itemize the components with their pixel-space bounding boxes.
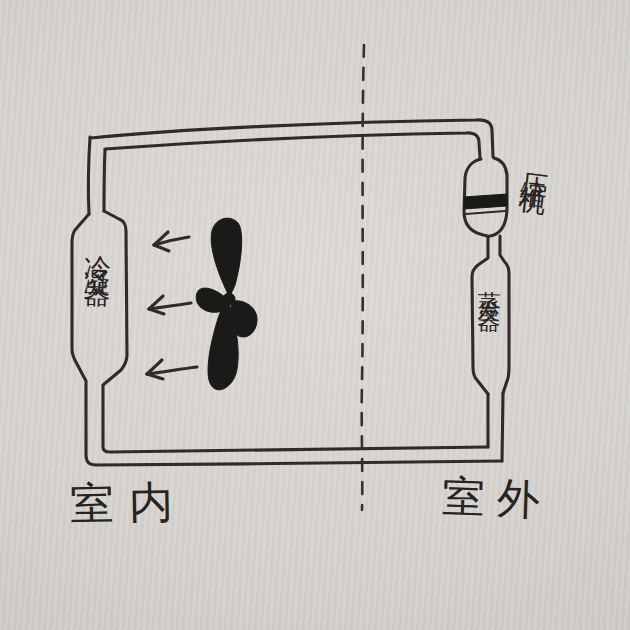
evaporator-left-edge	[472, 236, 488, 394]
compressor-shape	[464, 158, 507, 236]
fan-blade-top	[211, 218, 242, 296]
refrigeration-cycle-drawing	[0, 0, 630, 630]
evaporator-label: 蒸发器	[478, 272, 502, 302]
outdoor-zone-label: 室外	[441, 475, 552, 522]
fan-icon	[196, 218, 257, 390]
compressor-piston-line	[466, 211, 505, 214]
indoor-outdoor-divider-dashed-line	[362, 45, 364, 510]
pipe-top-inner	[105, 133, 480, 158]
pipe-right-lower-outer	[502, 393, 503, 461]
pipe-loop	[72, 120, 503, 465]
airflow-arrows	[147, 232, 197, 379]
compressor-label: 压缩机	[523, 150, 552, 174]
arrow-left-icon	[154, 232, 189, 251]
evaporator-shape	[472, 236, 509, 394]
compressor-piston-band	[464, 194, 507, 209]
condenser-left-edge-and-bottom-pipe-outer	[72, 214, 502, 465]
fan-hub	[223, 293, 235, 305]
pipe-left-upper-outer	[88, 137, 90, 214]
arrow-left-icon	[149, 296, 191, 314]
indoor-zone-label: 室内	[70, 480, 189, 526]
evaporator-right-edge	[500, 236, 509, 393]
paper-sketch-canvas: 冷凝器 压缩机 蒸发器 室内 室外	[0, 0, 630, 630]
condenser-label: 冷凝器	[84, 234, 112, 274]
arrow-left-icon	[147, 360, 197, 379]
pipe-left-upper-inner	[104, 150, 105, 211]
